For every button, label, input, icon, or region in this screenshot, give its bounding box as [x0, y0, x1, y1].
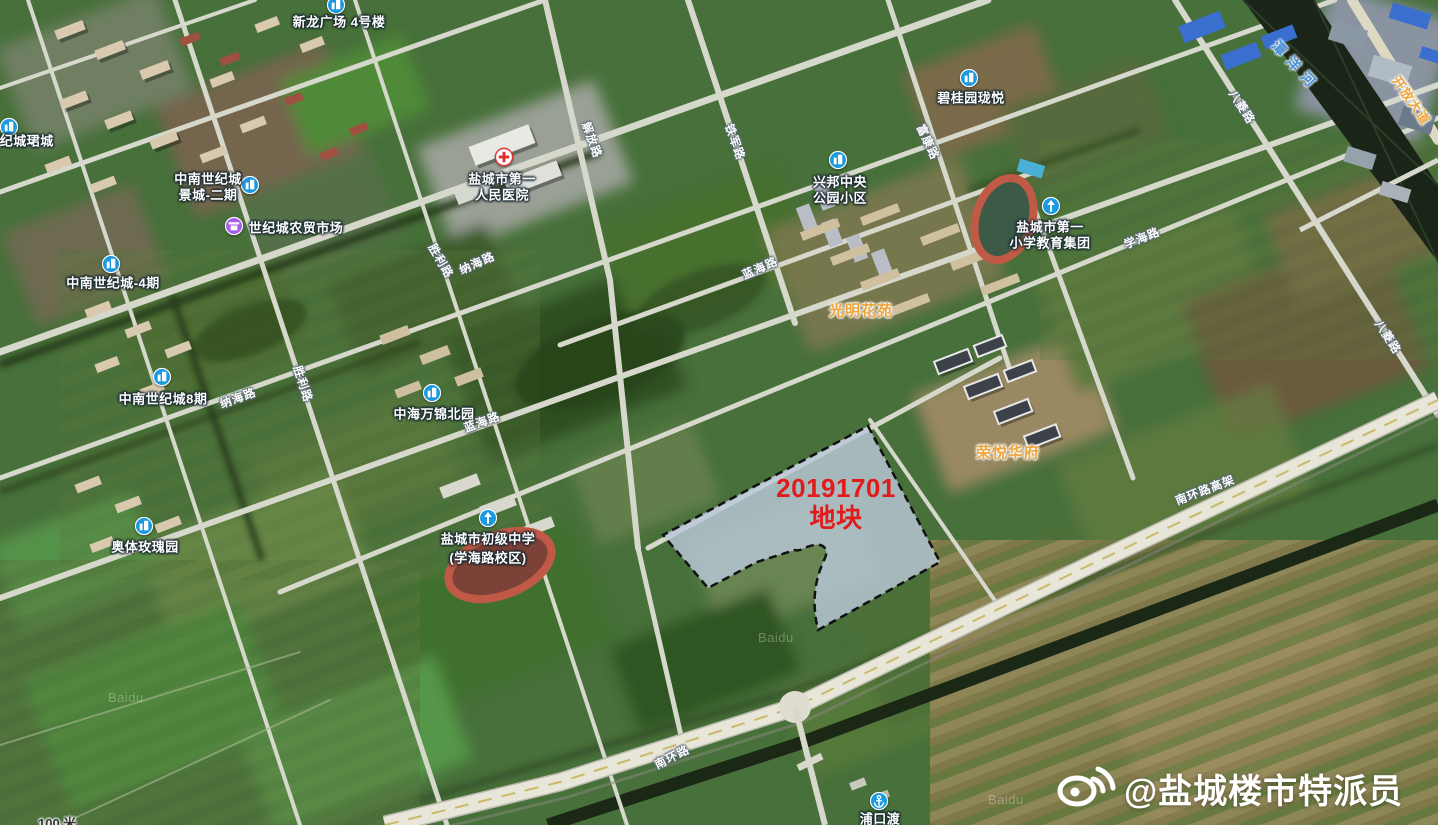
- baidu-tile-watermark: Baidu: [108, 690, 144, 705]
- road-label: 开放大道: [1388, 72, 1436, 129]
- map-screenshot: 新龙广场 4号楼世纪城珺城中南世纪城景城-二期世纪城农贸市场中南世纪城-4期盐城…: [0, 0, 1438, 825]
- building-icon[interactable]: [423, 384, 442, 403]
- baidu-tile-watermark: Baidu: [988, 792, 1024, 807]
- map-labels: 新龙广场 4号楼世纪城珺城中南世纪城景城-二期世纪城农贸市场中南世纪城-4期盐城…: [0, 0, 1438, 825]
- road-label: 胜利路: [425, 241, 458, 281]
- building-icon[interactable]: [829, 151, 848, 170]
- poi-label-yancheng-no1-hospital[interactable]: 人民医院: [475, 185, 529, 204]
- building-icon[interactable]: [102, 255, 121, 274]
- poi-label-yancheng-no1-primary[interactable]: 小学教育集团: [1009, 233, 1090, 252]
- poi-label-biguiyuan-longyue[interactable]: 碧桂园珑悦: [937, 88, 1005, 107]
- poi-label-zhongnan-8qi[interactable]: 中南世纪城8期: [119, 389, 208, 408]
- baidu-tile-watermark: Baidu: [758, 630, 794, 645]
- school-icon[interactable]: [1042, 197, 1061, 216]
- market-icon[interactable]: [225, 217, 244, 236]
- road-label: 蓝海路: [740, 253, 781, 283]
- area-label[interactable]: 光明花苑: [829, 300, 893, 321]
- poi-label-zhongnan-jingcheng[interactable]: 景城-二期: [179, 185, 238, 204]
- road-label: 学海路: [1122, 224, 1163, 253]
- school-icon[interactable]: [479, 509, 498, 528]
- road-label: 铁军路: [721, 122, 749, 163]
- poi-label-aoti-meigui[interactable]: 奥体玫瑰园: [111, 537, 179, 556]
- road-label: 八菱路: [1371, 317, 1405, 357]
- building-icon[interactable]: [241, 176, 260, 195]
- poi-label-shijicheng-juncheng[interactable]: 世纪城珺城: [0, 131, 54, 150]
- road-label: 八菱路: [1225, 87, 1259, 127]
- road-label: 纳海路: [218, 384, 259, 412]
- poi-label-yancheng-junior-middle[interactable]: 盐城市初级中学: [441, 529, 536, 548]
- parcel-label: 20191701 地块: [776, 473, 896, 533]
- road-label: 纳海路: [457, 248, 498, 278]
- area-label[interactable]: 荣悦华府: [976, 442, 1040, 463]
- road-label: 南环路高架: [1173, 471, 1237, 508]
- river-label: 潭洋河: [1267, 36, 1325, 96]
- poi-label-shijicheng-market[interactable]: 世纪城农贸市场: [249, 218, 344, 237]
- poi-label-yancheng-junior-middle[interactable]: (学海路校区): [449, 548, 526, 567]
- building-icon[interactable]: [153, 368, 172, 387]
- hospital-icon[interactable]: [495, 148, 514, 167]
- parcel-id: 20191701: [776, 473, 896, 503]
- building-icon[interactable]: [135, 517, 154, 536]
- road-label: 胜利路: [290, 364, 317, 405]
- poi-label-pukou-ferry[interactable]: 浦口渡: [860, 809, 901, 825]
- road-label: 富康路: [913, 122, 943, 163]
- parcel-name: 地块: [776, 503, 896, 533]
- weibo-logo-icon: [1052, 762, 1116, 815]
- poi-label-xingbang-central-park[interactable]: 公园小区: [813, 188, 867, 207]
- road-label: 解放路: [578, 120, 606, 161]
- poi-label-zhongnan-4qi[interactable]: 中南世纪城-4期: [66, 273, 160, 292]
- road-label: 南环路: [652, 741, 693, 772]
- attribution-handle: @盐城楼市特派员: [1124, 764, 1403, 813]
- poi-label-xinlong-plaza[interactable]: 新龙广场 4号楼: [293, 12, 386, 31]
- attribution-watermark: @盐城楼市特派员: [1052, 762, 1403, 815]
- building-icon[interactable]: [960, 69, 979, 88]
- scale-label: 100 米: [38, 813, 76, 825]
